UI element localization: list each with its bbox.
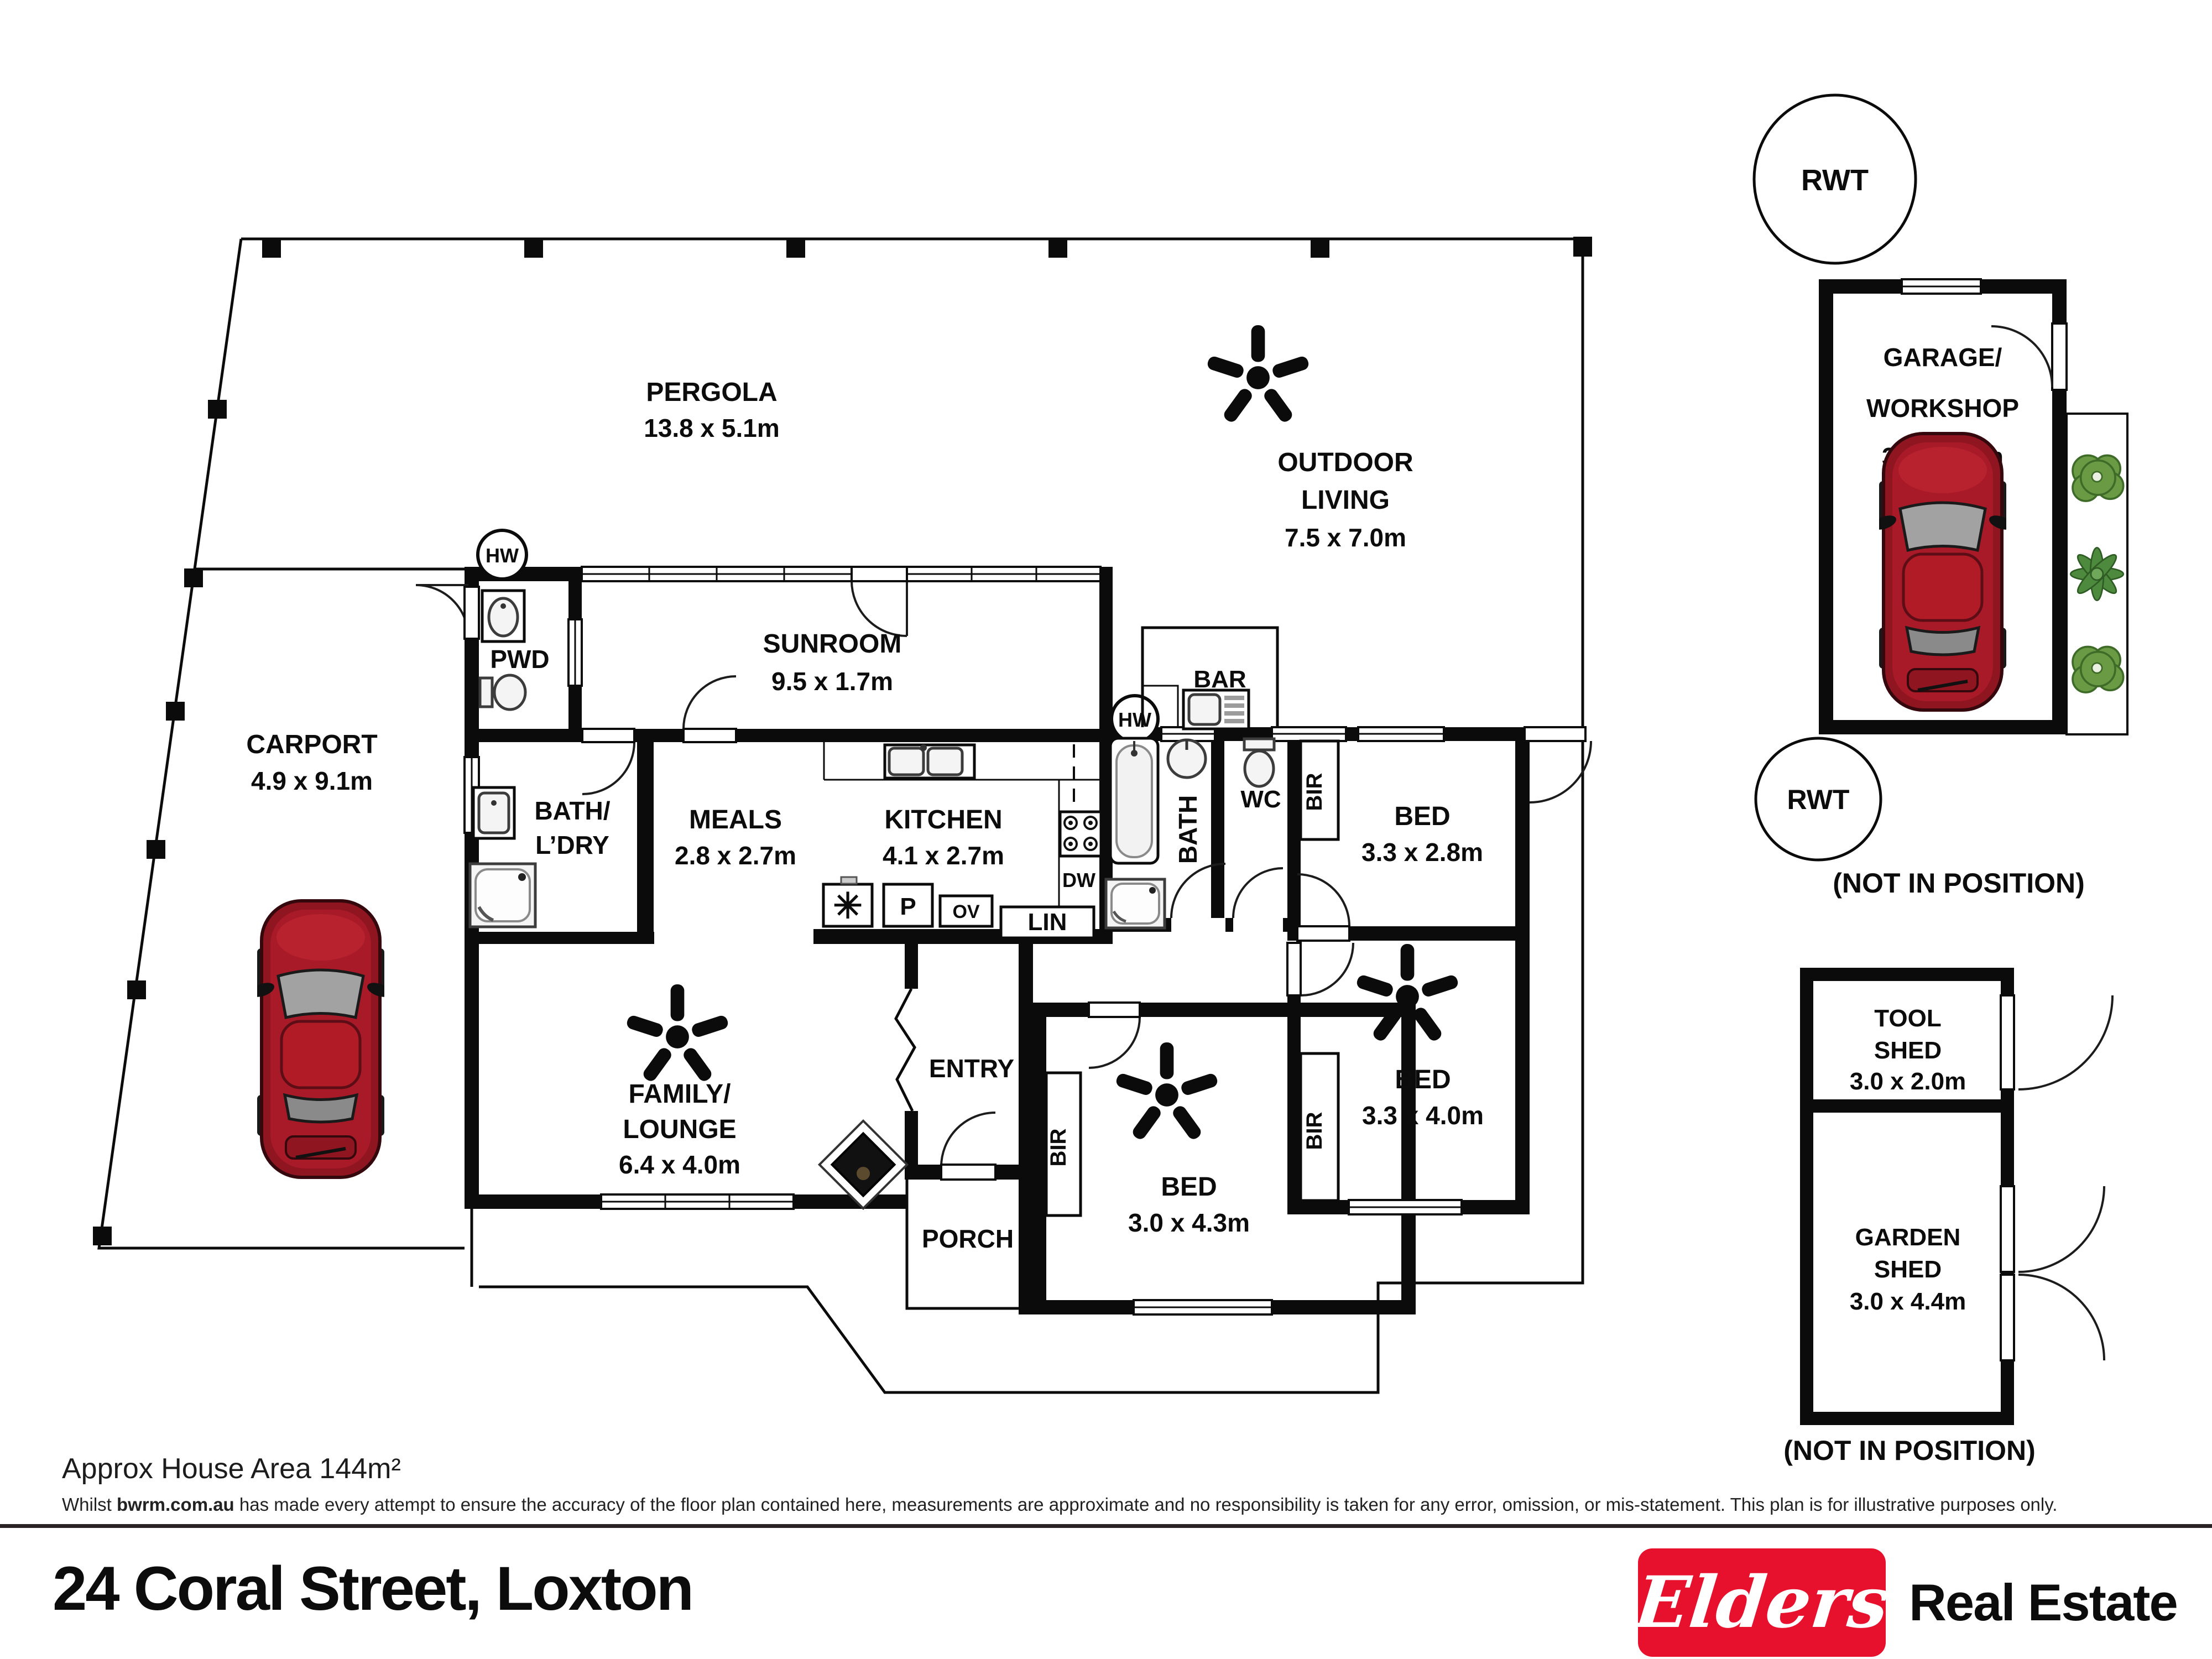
elders-logo: Elders <box>1638 1548 1886 1657</box>
brand-row: Elders Real Estate <box>1638 1548 2177 1657</box>
room-garden-shed: GARDEN SHED 3.0 x 4.4m <box>1800 1113 2104 1425</box>
bath-ldry-label-1: BATH/ <box>534 796 610 825</box>
door-threshold <box>2001 1186 2014 1272</box>
oven-cupboard: OV <box>940 896 992 926</box>
linen-cupboard: LIN <box>1001 907 1094 938</box>
ceiling-fan-icon <box>1206 325 1310 424</box>
stove-icon <box>1060 812 1101 856</box>
oven-label: OV <box>952 901 979 922</box>
outdoor-living-label-2: LIVING <box>1301 486 1390 515</box>
family-dims: 6.4 x 4.0m <box>619 1150 740 1179</box>
plant-icon <box>2073 456 2124 502</box>
window <box>907 567 1100 581</box>
tool-shed-label-2: SHED <box>1874 1037 1942 1064</box>
garden-shed-dims: 3.0 x 4.4m <box>1850 1288 1966 1315</box>
floorplan-page: PERGOLA 13.8 x 5.1m OUTDOOR LIVING 7.5 x… <box>0 0 2212 1659</box>
entry-zigzag-wall <box>896 989 915 1111</box>
bed3-dims: 3.0 x 4.3m <box>1128 1208 1250 1237</box>
bir-label: BIR <box>1302 773 1327 811</box>
footer-divider <box>0 1524 2212 1528</box>
meals-label: MEALS <box>689 805 782 834</box>
window <box>1134 1300 1272 1314</box>
outdoor-living-label-1: OUTDOOR <box>1277 448 1413 477</box>
bath-ldry-label-2: L’DRY <box>535 831 609 859</box>
shower-icon <box>1106 879 1165 928</box>
kitchen-sink-icon <box>885 744 974 778</box>
room-meals: MEALS 2.8 x 2.7m <box>675 805 796 870</box>
car-icon <box>249 901 393 1177</box>
room-sunroom: SUNROOM 9.5 x 1.7m <box>763 629 902 696</box>
room-outdoor-living: OUTDOOR LIVING 7.5 x 7.0m <box>1206 325 1413 552</box>
door-threshold <box>2052 324 2067 390</box>
bed2-label: BED <box>1395 1065 1451 1094</box>
window <box>601 1194 794 1209</box>
property-boundary <box>93 237 1592 1392</box>
ceiling-fan-icon <box>1115 1042 1219 1141</box>
rwt-label: RWT <box>1787 784 1850 815</box>
tool-shed-label-1: TOOL <box>1874 1005 1941 1032</box>
carport-dims: 4.9 x 9.1m <box>251 766 373 795</box>
bir-label: BIR <box>1302 1112 1327 1150</box>
meals-dims: 2.8 x 2.7m <box>675 841 796 870</box>
hw-label: HW <box>1118 708 1151 731</box>
disclaimer-site: bwrm.com.au <box>117 1494 234 1515</box>
window <box>582 567 852 581</box>
toilet-icon <box>480 675 525 709</box>
garage-label-2: WORKSHOP <box>1866 394 2019 422</box>
pwd-label: PWD <box>490 645 549 674</box>
window <box>1902 279 1981 294</box>
fridge-symbol: ✳ <box>833 886 863 926</box>
room-bed2: BIR BED 3.3 x 4.0m <box>1301 944 1484 1201</box>
pantry-label: P <box>900 893 916 920</box>
hot-water-unit: HW <box>1112 696 1158 742</box>
disclaimer-pre: Whilst <box>62 1494 117 1515</box>
bath-label: BATH <box>1173 795 1202 864</box>
room-bed3: BIR BED 3.0 x 4.3m <box>1046 1042 1250 1237</box>
plant-icon <box>2070 547 2123 600</box>
room-family-lounge: FAMILY/ LOUNGE 6.4 x 4.0m <box>619 984 907 1208</box>
porch-label: PORCH <box>922 1224 1014 1253</box>
window <box>1272 727 1346 741</box>
basin-icon <box>1168 740 1206 778</box>
pantry-cupboard: P <box>884 884 932 926</box>
room-pwd: PWD <box>480 591 550 709</box>
garden-shed-label-2: SHED <box>1874 1256 1942 1283</box>
garden-bed <box>2067 414 2127 734</box>
disclaimer-post: has made every attempt to ensure the acc… <box>234 1494 2058 1515</box>
rainwater-tank: RWT <box>1756 738 1881 860</box>
sunroom-dims: 9.5 x 1.7m <box>771 667 893 696</box>
room-tool-shed: TOOL SHED 3.0 x 2.0m <box>1800 968 2112 1113</box>
not-in-position-note: (NOT IN POSITION) <box>1783 1435 2036 1466</box>
car-icon <box>1871 434 2015 710</box>
room-entry: ENTRY <box>929 1054 1014 1083</box>
room-pergola: PERGOLA 13.8 x 5.1m <box>644 378 780 442</box>
outdoor-living-dims: 7.5 x 7.0m <box>1285 523 1406 552</box>
room-bed1: BIR BED 3.3 x 2.8m <box>1301 741 1483 867</box>
sink-icon <box>473 787 514 838</box>
sink-icon <box>1183 690 1249 729</box>
bed1-label: BED <box>1394 802 1450 831</box>
rwt-label: RWT <box>1801 164 1869 197</box>
room-bath: BATH <box>1106 738 1206 928</box>
door-threshold <box>2001 995 2014 1089</box>
elders-logo-text: Elders <box>1632 1567 1892 1638</box>
brand-suffix: Real Estate <box>1909 1573 2177 1632</box>
door-threshold <box>2001 1275 2014 1360</box>
family-label-1: FAMILY/ <box>629 1079 731 1109</box>
sink-icon <box>482 591 524 641</box>
hot-water-unit: HW <box>478 530 526 579</box>
sunroom-label: SUNROOM <box>763 629 902 659</box>
linen-label: LIN <box>1028 909 1067 936</box>
kitchen-dims: 4.1 x 2.7m <box>883 841 1004 870</box>
family-label-2: LOUNGE <box>623 1115 736 1144</box>
garden-shed-label-1: GARDEN <box>1855 1224 1961 1251</box>
toilet-icon <box>1244 739 1274 786</box>
disclaimer: Whilst bwrm.com.au has made every attemp… <box>62 1494 2057 1515</box>
room-garage-workshop: GARAGE/ WORKSHOP 3.5 x 6.2m <box>1819 279 2067 734</box>
tool-shed-dims: 3.0 x 2.0m <box>1850 1068 1966 1095</box>
window <box>1349 1200 1462 1214</box>
bed2-dims: 3.3 x 4.0m <box>1362 1101 1484 1130</box>
plant-icon <box>2073 647 2124 693</box>
bar-alcove: BAR <box>1142 628 1277 729</box>
pergola-label: PERGOLA <box>646 378 777 407</box>
room-porch: PORCH <box>907 1180 1020 1308</box>
bed1-dims: 3.3 x 2.8m <box>1361 838 1483 867</box>
bir-label: BIR <box>1046 1128 1071 1166</box>
not-in-position-note: (NOT IN POSITION) <box>1833 868 2085 899</box>
room-bath-ldry: BATH/ L’DRY <box>470 787 611 927</box>
window <box>568 619 582 686</box>
hw-label: HW <box>486 544 519 567</box>
house-area-note: Approx House Area 144m² <box>62 1452 401 1485</box>
room-carport: CARPORT 4.9 x 9.1m <box>246 730 392 1177</box>
ceiling-fan-icon <box>625 984 729 1083</box>
cupboards: ✳ P OV LIN <box>823 877 1094 938</box>
kitchen-label: KITCHEN <box>884 805 1002 834</box>
room-wc: WC <box>1240 739 1281 813</box>
bathtub-icon <box>1110 738 1158 863</box>
shower-icon <box>470 864 535 927</box>
rainwater-tank: RWT <box>1754 95 1916 263</box>
entry-label: ENTRY <box>929 1054 1014 1083</box>
carport-label: CARPORT <box>246 730 377 759</box>
garage-label-1: GARAGE/ <box>1884 343 2002 372</box>
window <box>1358 727 1444 741</box>
floorplan-drawing: PERGOLA 13.8 x 5.1m OUTDOOR LIVING 7.5 x… <box>0 0 2212 1659</box>
pergola-dims: 13.8 x 5.1m <box>644 414 780 442</box>
property-address: 24 Coral Street, Loxton <box>53 1553 692 1624</box>
wc-label: WC <box>1240 786 1281 813</box>
dishwasher-label: DW <box>1062 869 1095 891</box>
fridge-icon: ✳ <box>823 877 872 926</box>
bed3-label: BED <box>1161 1172 1217 1202</box>
